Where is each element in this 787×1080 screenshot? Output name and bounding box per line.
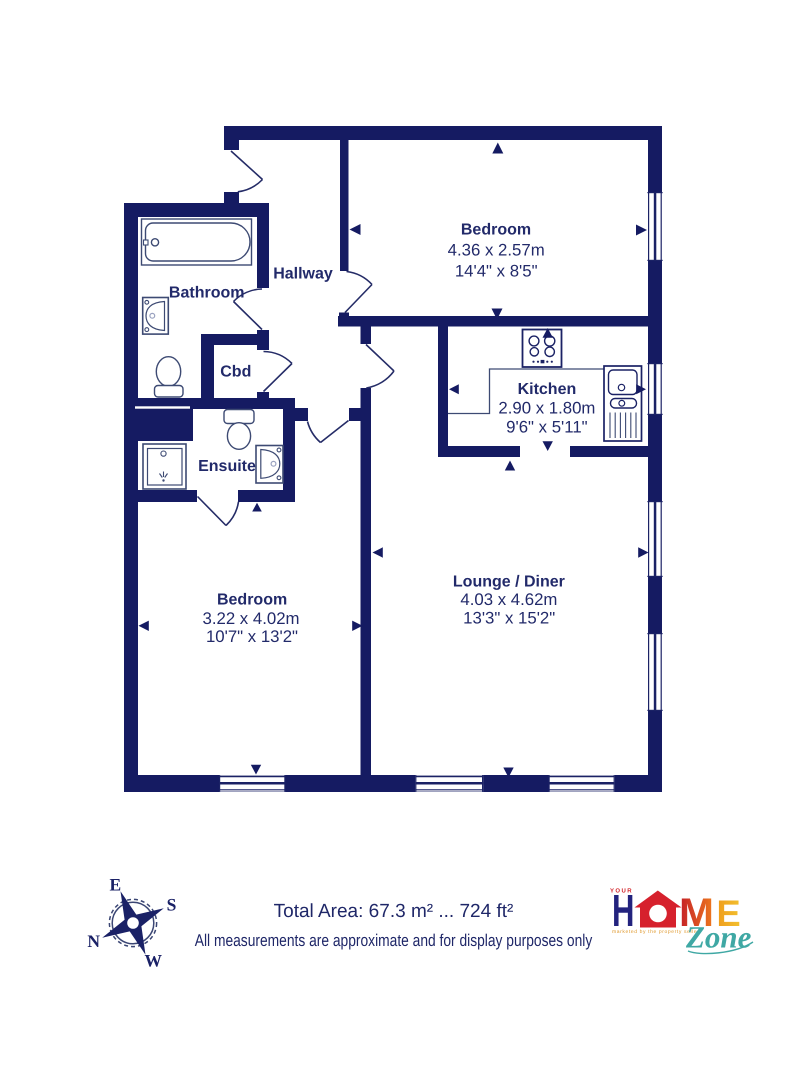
svg-text:Ensuite: Ensuite	[198, 458, 256, 475]
svg-text:Bedroom: Bedroom	[217, 592, 287, 609]
svg-text:4.03 x 4.62m: 4.03 x 4.62m	[460, 590, 557, 609]
svg-text:4.36 x 2.57m: 4.36 x 2.57m	[448, 241, 545, 260]
svg-text:Bathroom: Bathroom	[169, 285, 245, 302]
svg-text:All measurements are approxima: All measurements are approximate and for…	[195, 931, 593, 950]
svg-text:S: S	[167, 894, 177, 914]
svg-text:Bedroom: Bedroom	[461, 221, 531, 238]
svg-text:Hallway: Hallway	[273, 266, 333, 283]
svg-text:Kitchen: Kitchen	[518, 381, 577, 398]
svg-text:3.22 x 4.02m: 3.22 x 4.02m	[202, 609, 299, 628]
svg-text:10'7" x 13'2": 10'7" x 13'2"	[206, 627, 298, 646]
svg-text:13'3" x 15'2": 13'3" x 15'2"	[463, 609, 555, 628]
svg-text:N: N	[87, 931, 100, 951]
svg-text:14'4" x 8'5": 14'4" x 8'5"	[455, 261, 538, 280]
svg-text:Cbd: Cbd	[220, 364, 251, 381]
svg-text:2.90 x 1.80m: 2.90 x 1.80m	[498, 399, 595, 418]
svg-text:Zone: Zone	[685, 920, 752, 955]
svg-text:E: E	[110, 875, 122, 895]
svg-text:W: W	[145, 950, 163, 970]
svg-text:9'6" x 5'11": 9'6" x 5'11"	[506, 418, 587, 437]
svg-text:Lounge / Diner: Lounge / Diner	[453, 574, 565, 591]
svg-text:Total Area: 67.3 m² ... 724 ft: Total Area: 67.3 m² ... 724 ft²	[274, 901, 514, 922]
